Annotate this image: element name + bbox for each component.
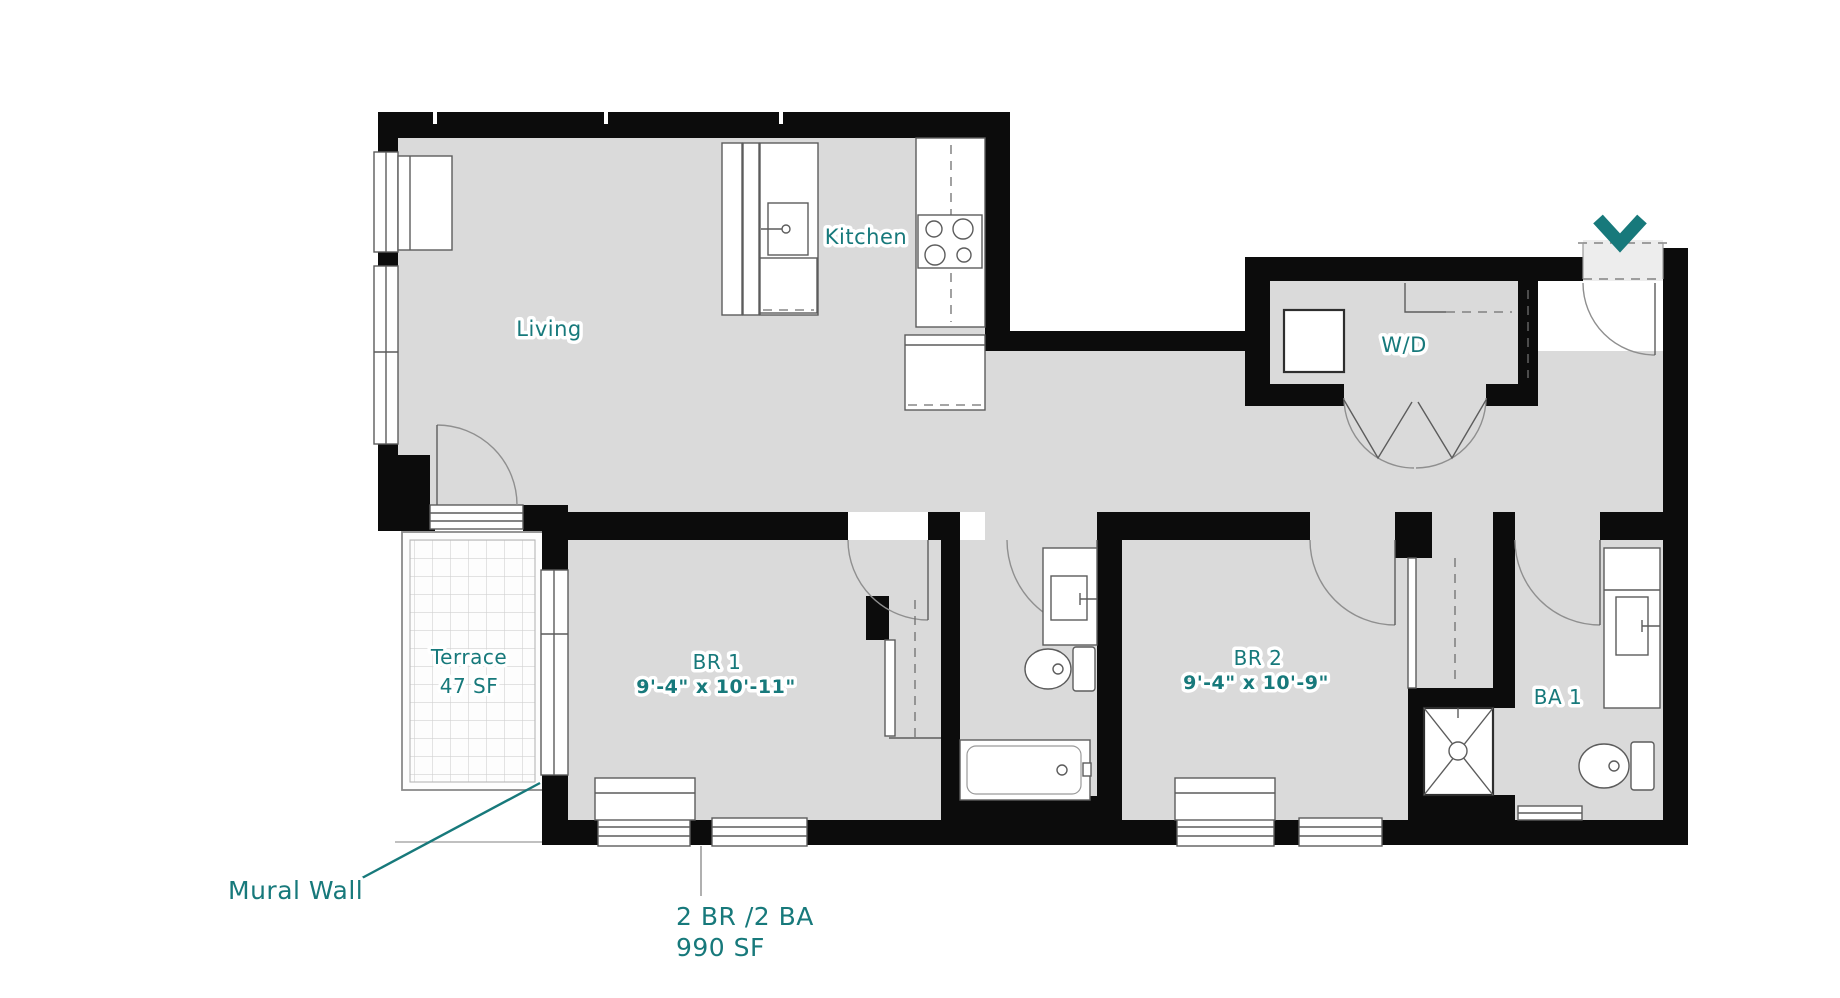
terrace-area: 47 SF <box>440 674 499 698</box>
dishwasher <box>760 258 817 313</box>
window <box>374 152 452 252</box>
floor-plan-drawing: Living Kitchen W/D Terrace 47 SF BR 1 9'… <box>0 0 1840 998</box>
kitchen-counter <box>916 138 985 327</box>
entry-door-swing <box>1583 283 1655 355</box>
living-label: Living <box>516 317 581 341</box>
bath2-sink <box>1051 576 1087 620</box>
unit-type-label: 2 BR /2 BA <box>676 902 814 931</box>
terrace-label: Terrace <box>430 645 507 669</box>
window <box>1177 818 1274 846</box>
window <box>541 570 568 775</box>
window <box>598 818 690 846</box>
br1-dims: 9'-4" x 10'-11" <box>636 676 796 698</box>
window <box>374 266 398 444</box>
terrace-sliding-door <box>430 505 523 529</box>
shower <box>1424 708 1493 795</box>
stove <box>918 215 982 268</box>
kitchen-label: Kitchen <box>825 225 907 249</box>
bath2-toilet <box>1025 647 1095 691</box>
bathtub <box>960 740 1091 800</box>
ba1-vanity <box>1604 548 1660 708</box>
ba1-toilet <box>1579 742 1654 790</box>
floor-plan-page: Living Kitchen W/D Terrace 47 SF BR 1 9'… <box>0 0 1840 998</box>
br1-dresser <box>595 778 695 820</box>
mural-wall-label: Mural Wall <box>228 876 363 905</box>
ba1-label: BA 1 <box>1534 685 1582 709</box>
br2-dresser <box>1175 778 1275 820</box>
window <box>712 818 807 846</box>
mural-wall-leader-line <box>362 783 540 878</box>
br2-label: BR 2 <box>1234 646 1283 670</box>
kitchen-island <box>722 143 818 315</box>
entry-chevron-icon <box>1598 219 1642 243</box>
vent-window <box>1518 806 1582 820</box>
washer-dryer-unit <box>1284 310 1344 372</box>
refrigerator <box>905 335 985 410</box>
unit-area-label: 990 SF <box>676 933 765 962</box>
br2-dims: 9'-4" x 10'-9" <box>1183 672 1329 694</box>
window <box>1299 818 1382 846</box>
bath2-vanity <box>1043 548 1097 645</box>
laundry-label: W/D <box>1381 333 1427 357</box>
br1-label: BR 1 <box>693 650 742 674</box>
